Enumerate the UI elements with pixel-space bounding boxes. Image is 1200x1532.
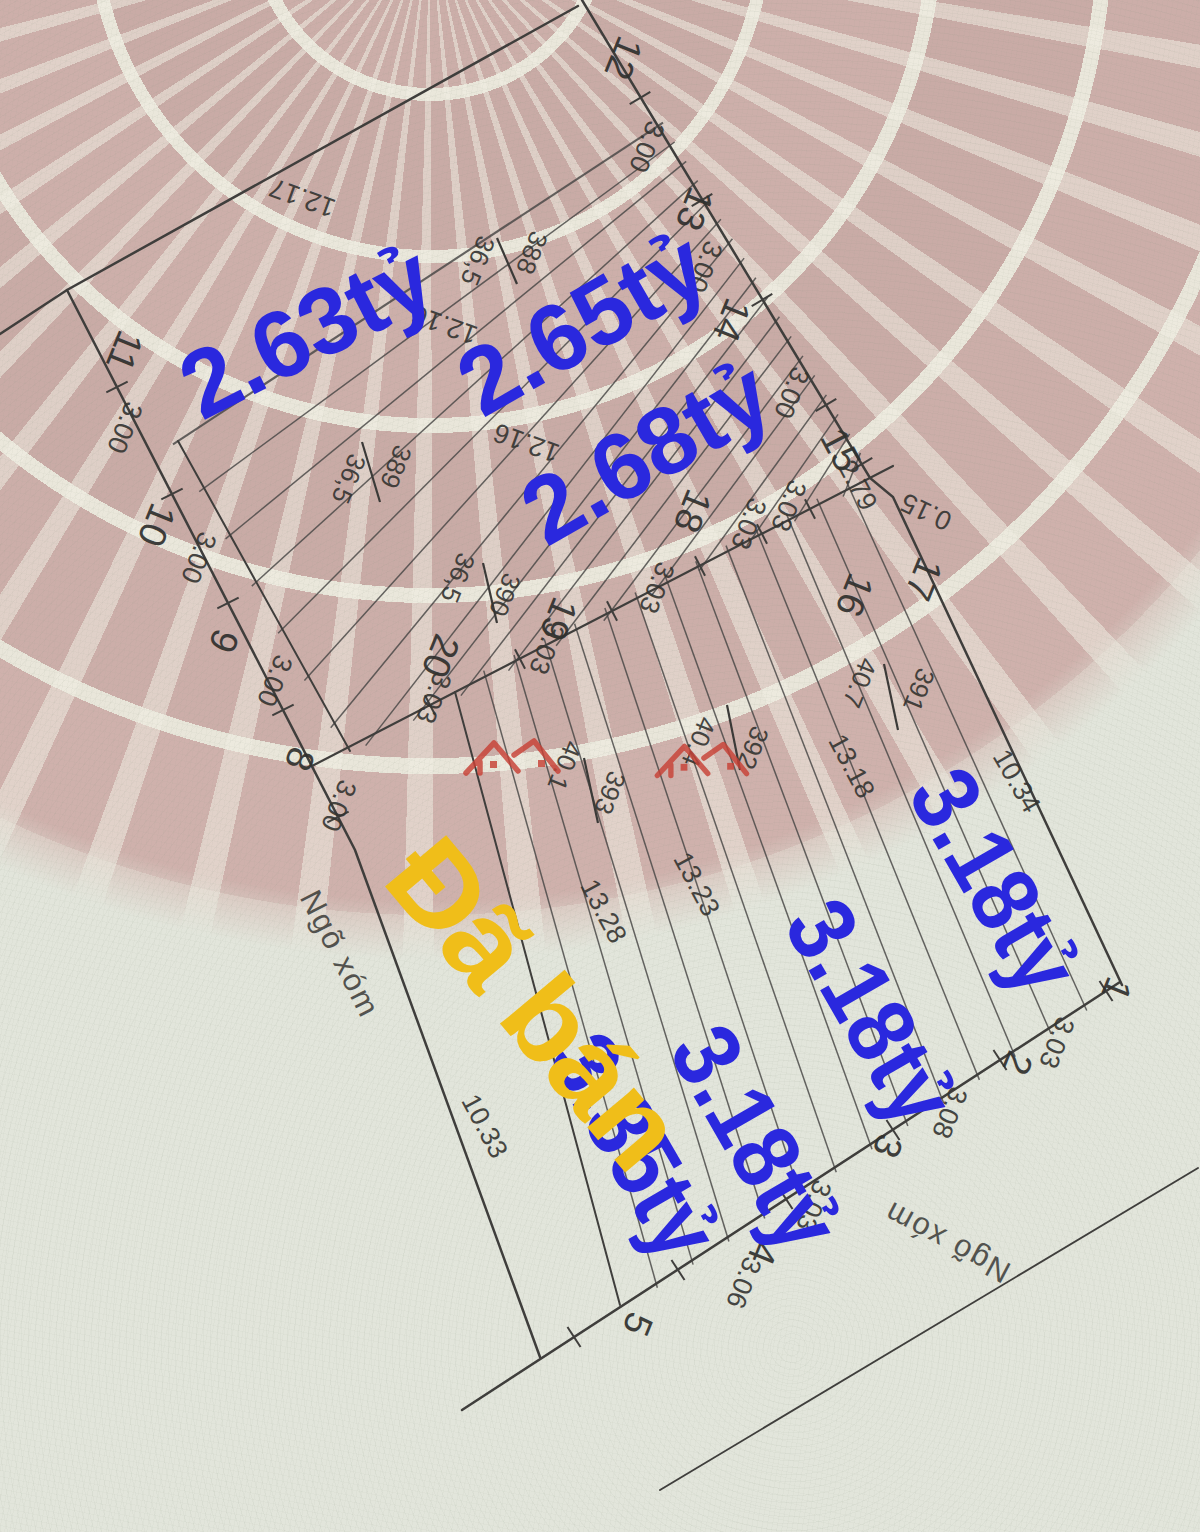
logo-window-icon <box>681 764 688 771</box>
plot-number-label: 5 <box>614 1306 661 1341</box>
edge-length-label: 12.17 <box>265 172 339 223</box>
logo-window-icon <box>727 763 734 770</box>
parcel-id-label: 388 <box>510 227 554 278</box>
tick-mark <box>106 382 127 393</box>
road-name-label: Ngõ xóm <box>878 1194 1016 1290</box>
dimension-label: 3.03 <box>410 668 458 728</box>
plot-number-label: 17 <box>896 552 951 607</box>
house-roof-icon <box>466 741 558 773</box>
plot-number-label: 1 <box>1093 971 1140 1006</box>
tick-mark <box>161 489 182 500</box>
price-overlay-label: 3.18tỷ <box>889 751 1101 1012</box>
dimension-label: 3.03 <box>725 494 773 554</box>
dimension-label: 0.15 <box>896 487 956 536</box>
parcel-area-label: 40.7 <box>837 654 884 712</box>
edge-length-label: 13.23 <box>668 847 726 921</box>
dimension-label: 3.03 <box>523 619 571 679</box>
parcel-id-label: 389 <box>374 441 418 492</box>
logo-window-icon <box>490 761 497 768</box>
dimension-label: 3.06 <box>720 1253 768 1313</box>
parcel-area-label: 36,5 <box>326 450 373 508</box>
tick-mark <box>671 1260 684 1280</box>
parcel-fraction-bar <box>884 664 898 730</box>
dimension-label: 2.79 <box>832 455 883 515</box>
dimension-label: 3.00 <box>101 398 149 458</box>
parcel-area-label: 36,5 <box>435 549 482 607</box>
dimension-label: 3.03 <box>633 558 681 618</box>
plot-number-label: 8 <box>276 741 323 776</box>
tick-mark <box>567 1327 580 1347</box>
plot-number-label: 2 <box>994 1045 1041 1080</box>
cadastral-photo-page: { "meta": { "description": "Vietnamese c… <box>0 0 1200 1532</box>
parcel-id-label: 391 <box>897 664 941 715</box>
cadastral-map: 121314151110981617181920123453.003.003.0… <box>0 0 1200 1532</box>
plot-number-label: 10 <box>129 498 184 553</box>
dimension-label: 3.03 <box>1033 1013 1081 1073</box>
dimension-label: 3.00 <box>623 117 671 177</box>
edge-length-label: 13.28 <box>575 874 633 948</box>
parcel-id-label: 390 <box>483 569 527 620</box>
map-labels: 121314151110981617181920123453.003.003.0… <box>98 31 1140 1342</box>
parcel-area-label: 40.1 <box>542 737 589 795</box>
price-overlay-label: 2.63tỷ <box>163 223 450 439</box>
plot-number-label: 11 <box>98 325 152 377</box>
logo-window-icon <box>538 760 545 767</box>
realty-logo-watermark <box>466 741 558 773</box>
plot-number-label: 16 <box>827 568 882 623</box>
parcel-area-label: 36,5 <box>455 232 502 290</box>
tick-mark <box>630 92 651 104</box>
boundary-lines <box>0 0 1198 1490</box>
edge-length-label: 13.18 <box>823 729 881 803</box>
tick-mark <box>217 598 238 609</box>
